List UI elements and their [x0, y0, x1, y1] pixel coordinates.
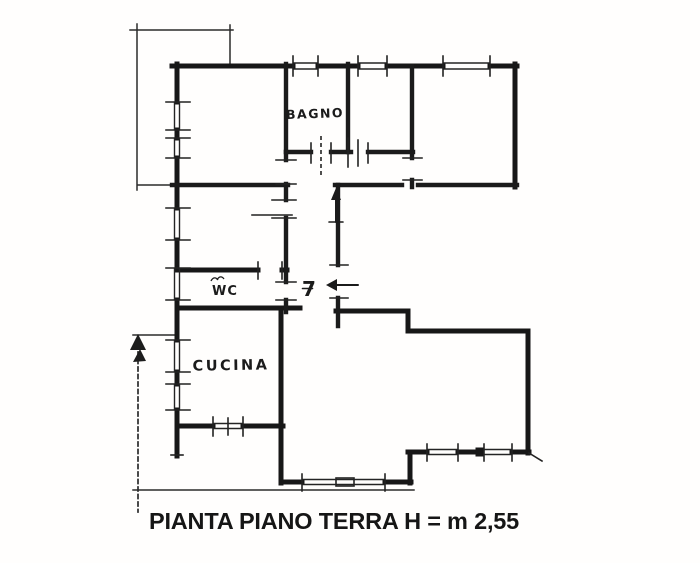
- wc-flourish: [211, 277, 224, 281]
- entrance-number-label: 7: [302, 277, 316, 301]
- window-left-6-icon: [175, 384, 180, 410]
- window-top-3-icon: [443, 63, 490, 69]
- window-bottom-1-icon: [427, 450, 458, 455]
- window-left-3-icon: [175, 208, 180, 240]
- wall-cucina: [177, 270, 300, 483]
- ticks-wc-door: [258, 262, 282, 279]
- floor-plan-canvas: BAGNO WC CUCINA 7 PIANTA PIANO TERRA H =…: [0, 0, 700, 563]
- balcony-outline: [130, 24, 233, 190]
- window-divider-block: [476, 448, 485, 457]
- plan-caption: PIANTA PIANO TERRA H = m 2,55: [149, 508, 519, 534]
- room-label-bagno: BAGNO: [286, 105, 345, 122]
- room-label-wc: WC: [212, 284, 238, 299]
- wall-living-room: [336, 311, 529, 483]
- entrance-arrow-icon: [303, 188, 359, 291]
- wc-flourish-strokes: [211, 277, 224, 281]
- window-bottom-2-icon: [484, 450, 512, 455]
- boundary-marker-top: [130, 334, 146, 350]
- window-left-2-icon: [175, 138, 180, 158]
- boundary-marker-bottom: [133, 349, 146, 362]
- window-left-1-icon: [175, 102, 180, 130]
- window-top-2-icon: [358, 63, 387, 69]
- window-left-5-icon: [175, 340, 180, 372]
- ticks-cucina-door: [213, 417, 243, 436]
- tick-marks: [166, 56, 542, 491]
- corner-diagonal-tick: [529, 453, 542, 461]
- window-top-1-icon: [293, 63, 318, 69]
- window-bottom-3-icon: [302, 480, 385, 485]
- floor-plan-page: BAGNO WC CUCINA 7 PIANTA PIANO TERRA H =…: [0, 0, 700, 563]
- exterior-walls: [172, 64, 529, 483]
- ticks-right-room-door: [403, 158, 422, 180]
- entrance-arrow-left-head: [326, 279, 337, 291]
- room-label-cucina: CUCINA: [192, 357, 269, 374]
- boundary-marker-icon: [130, 334, 146, 362]
- window-icons: [175, 63, 513, 486]
- window-left-4-icon: [175, 268, 180, 300]
